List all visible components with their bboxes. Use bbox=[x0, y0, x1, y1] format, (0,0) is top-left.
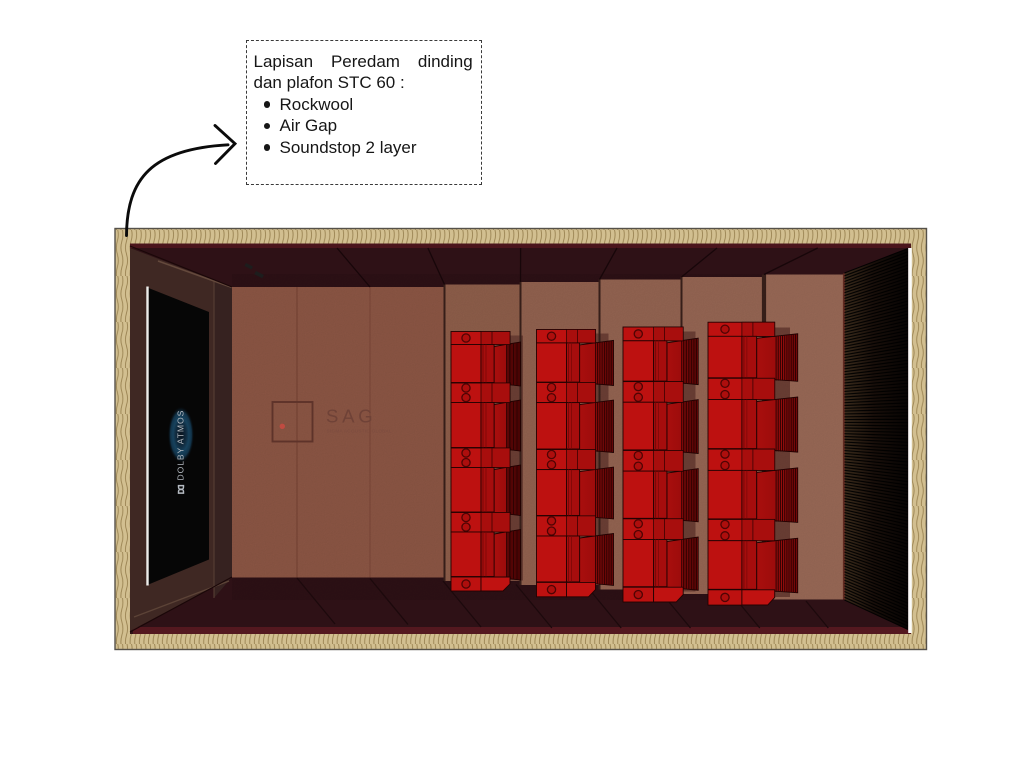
svg-text:SAG: SAG bbox=[326, 406, 376, 427]
svg-text:SIGMA ACOUSTIC GLOBAL: SIGMA ACOUSTIC GLOBAL bbox=[327, 429, 392, 434]
svg-text:DOLBY ATMOS: DOLBY ATMOS bbox=[176, 410, 186, 481]
